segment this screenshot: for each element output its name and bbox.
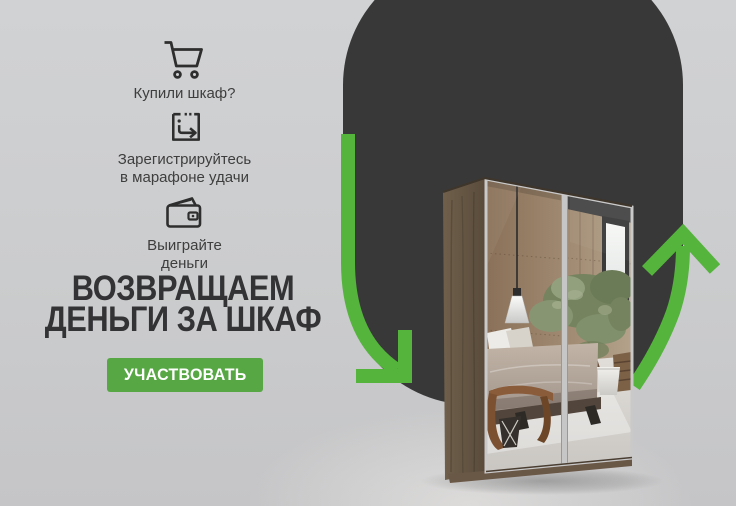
participate-button[interactable]: УЧАСТВОВАТЬ: [107, 358, 263, 392]
participate-button-label: УЧАСТВОВАТЬ: [124, 365, 247, 385]
step-2-label: Зарегистрируйтесь в марафоне удачи: [57, 151, 312, 186]
step-3-label: Выиграйте деньги: [57, 237, 312, 272]
curved-arrow-up-icon: [634, 234, 715, 386]
banner-heading: ВОЗВРАЩАЕМ ДЕНЬГИ ЗА ШКАФ: [38, 273, 328, 335]
step-1-label: Купили шкаф?: [57, 85, 312, 103]
mirror-reflection: [486, 179, 634, 472]
promo-banner: Купили шкаф? Зарегистрируйтесь в марафон…: [0, 0, 736, 506]
register-icon: [166, 106, 206, 146]
wardrobe-photo: [443, 178, 634, 483]
heading-line-2: ДЕНЬГИ ЗА ШКАФ: [45, 300, 321, 339]
cart-icon: [161, 37, 205, 81]
curved-arrow-down-icon: [348, 134, 405, 376]
wallet-icon: [162, 191, 206, 235]
wardrobe-side-panel: [443, 178, 486, 480]
